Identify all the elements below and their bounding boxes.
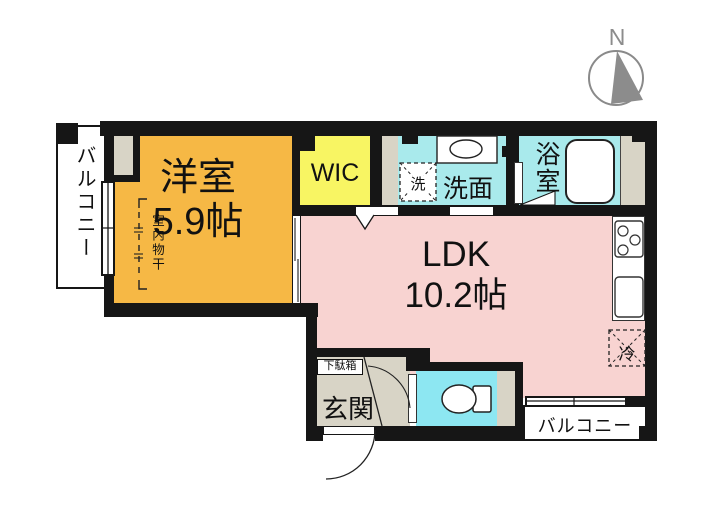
refrigerator-label: 冷 [611, 340, 643, 365]
compass-north-label: N [602, 24, 632, 51]
wall-entrance-top [306, 348, 412, 357]
wic-label: WIC [300, 159, 370, 188]
shoe-cabinet-label: 下駄箱 [317, 359, 363, 375]
entrance-label: 玄関 [319, 389, 377, 426]
wall-right [645, 121, 657, 441]
balcony-left-corner-block [56, 123, 78, 144]
wall-wic-right [370, 134, 382, 205]
balcony-bottom-label: バルコニー [532, 412, 638, 438]
pipe-space-bath [620, 136, 645, 205]
compass-circle [589, 51, 643, 105]
balcony-left-label: バルコニー [70, 145, 99, 260]
compass-needle-icon [611, 51, 643, 104]
door-opening-washroom [450, 206, 493, 216]
wall-entrance-left [306, 303, 317, 441]
refrigerator-label-text: 冷 [619, 345, 636, 364]
bathroom-label: 浴室 [528, 141, 564, 195]
window-western-balcony [101, 181, 115, 276]
door-opening-wic [356, 206, 398, 216]
sliding-door-western-ldk [292, 216, 301, 303]
kitchen-counter [612, 216, 645, 321]
western-room-name: 洋室 [118, 157, 278, 201]
door-bathroom [514, 162, 523, 204]
wall-toilet-top [406, 362, 523, 371]
floor-plan: N バルコニー 洋室 5.9帖 室内物干 WIC 洗 洗面 浴室 LDK 10.… [0, 0, 720, 512]
laundry-label: 洗 [402, 173, 434, 194]
ldk-label: LDK 10.2帖 [366, 234, 546, 317]
western-room-label: 洋室 5.9帖 [118, 157, 278, 244]
wall-bath-notch [632, 121, 645, 142]
wall-wic-notch [298, 136, 315, 151]
pipe-space-toilet [497, 371, 515, 426]
wall-washroom-notch [402, 136, 418, 144]
pipe-space-wic [382, 136, 398, 205]
wall-western-bottom [104, 303, 318, 317]
ldk-size: 10.2帖 [366, 275, 546, 316]
door-toilet [408, 374, 417, 423]
window-ldk-balcony [525, 396, 627, 407]
room-toilet [416, 371, 497, 426]
western-room-size: 5.9帖 [118, 201, 278, 245]
washroom-label: 洗面 [436, 169, 500, 205]
ldk-name: LDK [366, 234, 546, 275]
indoor-drying-label: 室内物干 [148, 214, 167, 272]
laundry-label-text: 洗 [409, 176, 426, 193]
wall-ldk-bottom-right [627, 396, 645, 407]
entry-door-leaf [323, 426, 375, 435]
